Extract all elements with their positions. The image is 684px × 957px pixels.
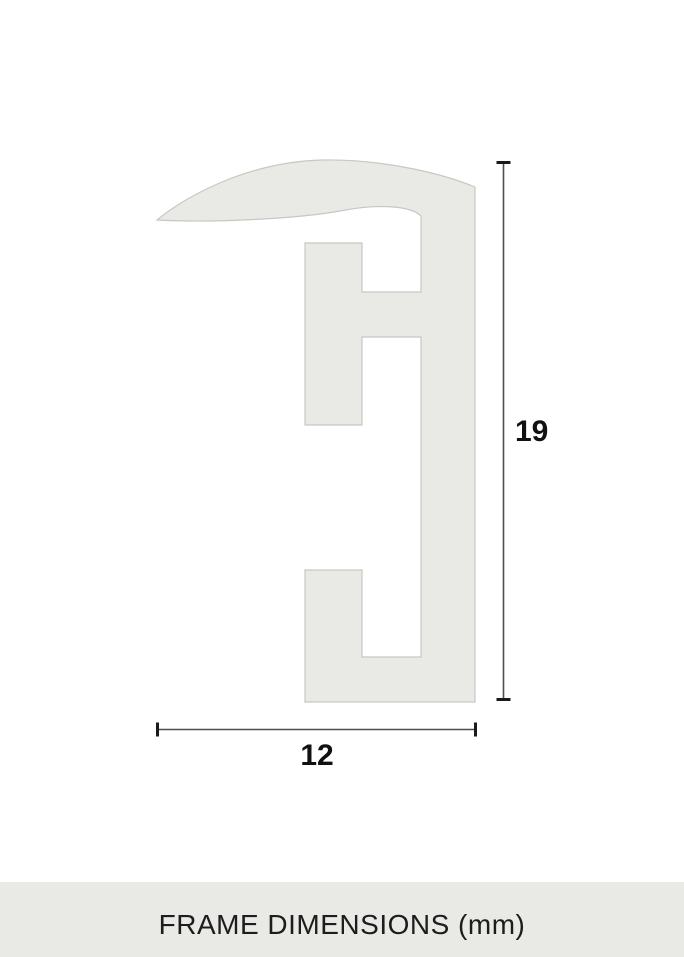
- footer-caption-text: FRAME DIMENSIONS (mm): [159, 909, 526, 941]
- frame-profile-diagram: 19 12: [0, 0, 684, 882]
- frame-profile-shape: [157, 160, 475, 702]
- width-dimension-label: 12: [300, 739, 333, 772]
- height-dimension: 19: [497, 163, 549, 700]
- frame-dimensions-page: 19 12 FRAME DIMENSIONS (mm): [0, 0, 684, 957]
- height-dimension-label: 19: [515, 415, 548, 448]
- width-dimension: 12: [158, 723, 476, 773]
- footer-caption-bar: FRAME DIMENSIONS (mm): [0, 882, 684, 957]
